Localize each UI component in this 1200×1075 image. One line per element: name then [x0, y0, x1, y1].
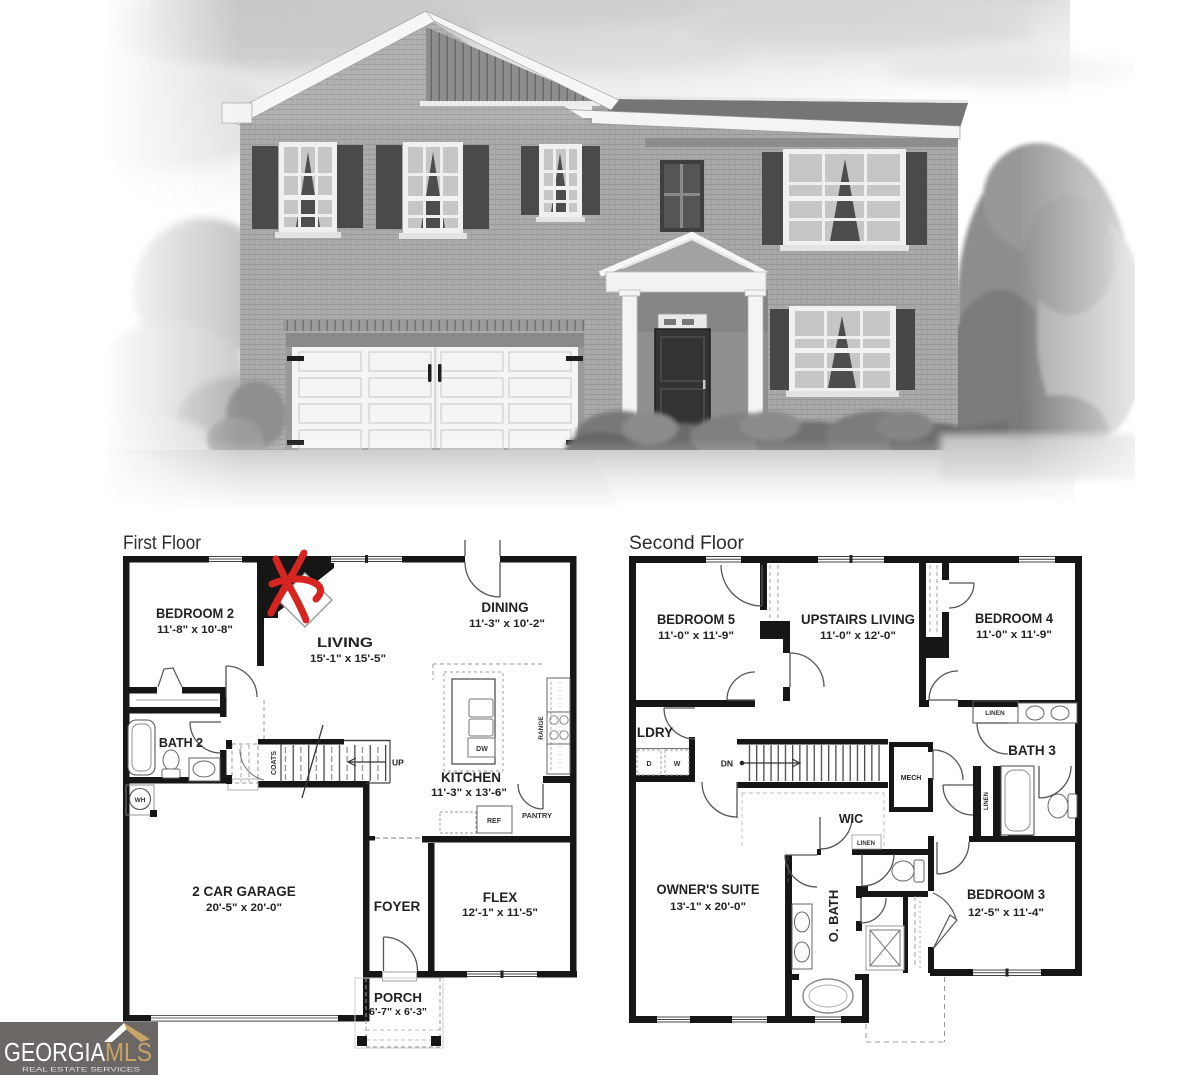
svg-text:DN: DN: [721, 759, 733, 769]
svg-text:BEDROOM 3: BEDROOM 3: [967, 887, 1045, 902]
svg-text:LIVING: LIVING: [317, 635, 373, 650]
svg-text:COATS: COATS: [271, 751, 278, 775]
svg-text:20'-5" x 20'-0": 20'-5" x 20'-0": [206, 902, 282, 914]
svg-text:FLEX: FLEX: [483, 890, 518, 905]
svg-text:D: D: [646, 761, 651, 768]
svg-text:BEDROOM 2: BEDROOM 2: [156, 606, 234, 621]
svg-text:PORCH: PORCH: [374, 991, 422, 1005]
svg-text:MLS: MLS: [105, 1037, 152, 1067]
svg-text:LINEN: LINEN: [857, 841, 875, 847]
svg-text:OWNER'S SUITE: OWNER'S SUITE: [657, 882, 760, 897]
svg-text:2 CAR GARAGE: 2 CAR GARAGE: [192, 884, 296, 899]
svg-text:WIC: WIC: [839, 812, 863, 826]
svg-text:BATH 3: BATH 3: [1008, 743, 1056, 758]
svg-text:First Floor: First Floor: [123, 533, 202, 554]
svg-text:UPSTAIRS LIVING: UPSTAIRS LIVING: [801, 612, 915, 627]
svg-text:15'-1" x 15'-5": 15'-1" x 15'-5": [310, 653, 386, 665]
svg-text:DINING: DINING: [481, 600, 528, 615]
svg-text:REAL ESTATE SERVICES: REAL ESTATE SERVICES: [22, 1067, 141, 1074]
svg-text:UP: UP: [392, 758, 404, 768]
svg-text:6'-7" x 6'-3": 6'-7" x 6'-3": [369, 1007, 427, 1018]
svg-text:11'-3" x 13'-6": 11'-3" x 13'-6": [431, 787, 507, 799]
svg-text:MECH: MECH: [901, 775, 922, 782]
svg-text:GEORGIA: GEORGIA: [4, 1037, 106, 1067]
svg-text:11'-0" x 11'-9": 11'-0" x 11'-9": [976, 629, 1052, 641]
svg-text:11'-0" x 11'-9": 11'-0" x 11'-9": [658, 630, 734, 642]
svg-text:REF: REF: [487, 818, 502, 825]
svg-text:LINEN: LINEN: [984, 792, 990, 810]
svg-text:11'-0" x 12'-0": 11'-0" x 12'-0": [820, 630, 896, 642]
svg-text:W: W: [674, 761, 681, 768]
svg-text:12'-5" x 11'-4": 12'-5" x 11'-4": [968, 907, 1044, 919]
svg-text:BEDROOM 5: BEDROOM 5: [657, 612, 735, 627]
svg-text:Second Floor: Second Floor: [629, 533, 745, 554]
svg-text:11'-3" x 10'-2": 11'-3" x 10'-2": [469, 618, 545, 630]
svg-text:RANGE: RANGE: [538, 716, 545, 740]
svg-text:O. BATH: O. BATH: [826, 890, 841, 942]
svg-text:BATH 2: BATH 2: [159, 736, 203, 750]
svg-text:12'-1" x 11'-5": 12'-1" x 11'-5": [462, 907, 538, 919]
svg-text:KITCHEN: KITCHEN: [441, 770, 501, 785]
svg-text:DW: DW: [476, 746, 488, 753]
svg-text:BEDROOM 4: BEDROOM 4: [975, 611, 1053, 626]
svg-text:FOYER: FOYER: [374, 899, 421, 914]
svg-text:LINEN: LINEN: [985, 710, 1005, 717]
svg-text:WH: WH: [135, 797, 146, 804]
svg-text:PANTRY: PANTRY: [522, 811, 552, 820]
svg-text:LDRY: LDRY: [637, 725, 673, 740]
svg-text:13'-1" x 20'-0": 13'-1" x 20'-0": [670, 901, 746, 913]
svg-text:11'-8" x 10'-8": 11'-8" x 10'-8": [157, 624, 233, 636]
